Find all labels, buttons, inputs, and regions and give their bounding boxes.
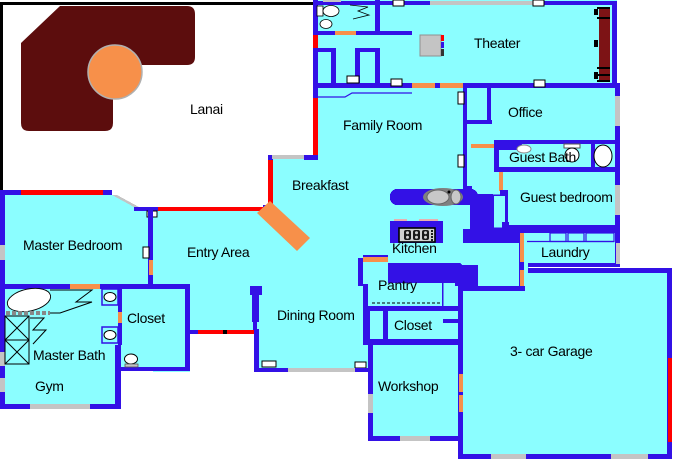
svg-text:Theater: Theater — [474, 35, 521, 51]
svg-text:Family Room: Family Room — [343, 117, 422, 133]
svg-text:Closet: Closet — [394, 317, 432, 333]
svg-text:Lanai: Lanai — [190, 101, 223, 117]
svg-text:Workshop: Workshop — [378, 378, 439, 394]
svg-text:Entry Area: Entry Area — [187, 244, 250, 260]
svg-text:Office: Office — [508, 104, 543, 120]
svg-text:Laundry: Laundry — [541, 244, 590, 260]
svg-text:Gym: Gym — [35, 378, 64, 394]
svg-text:3- car Garage: 3- car Garage — [510, 343, 593, 359]
svg-text:Guest bedroom: Guest bedroom — [520, 189, 613, 205]
svg-text:Master Bedroom: Master Bedroom — [23, 237, 122, 253]
svg-text:Guest Bath: Guest Bath — [509, 149, 576, 165]
svg-text:Closet: Closet — [127, 310, 165, 326]
svg-text:Master Bath: Master Bath — [33, 347, 105, 363]
svg-text:Kitchen: Kitchen — [392, 240, 437, 256]
svg-text:Dining Room: Dining Room — [277, 307, 355, 323]
svg-text:Pantry: Pantry — [378, 277, 417, 293]
svg-text:Breakfast: Breakfast — [292, 177, 349, 193]
